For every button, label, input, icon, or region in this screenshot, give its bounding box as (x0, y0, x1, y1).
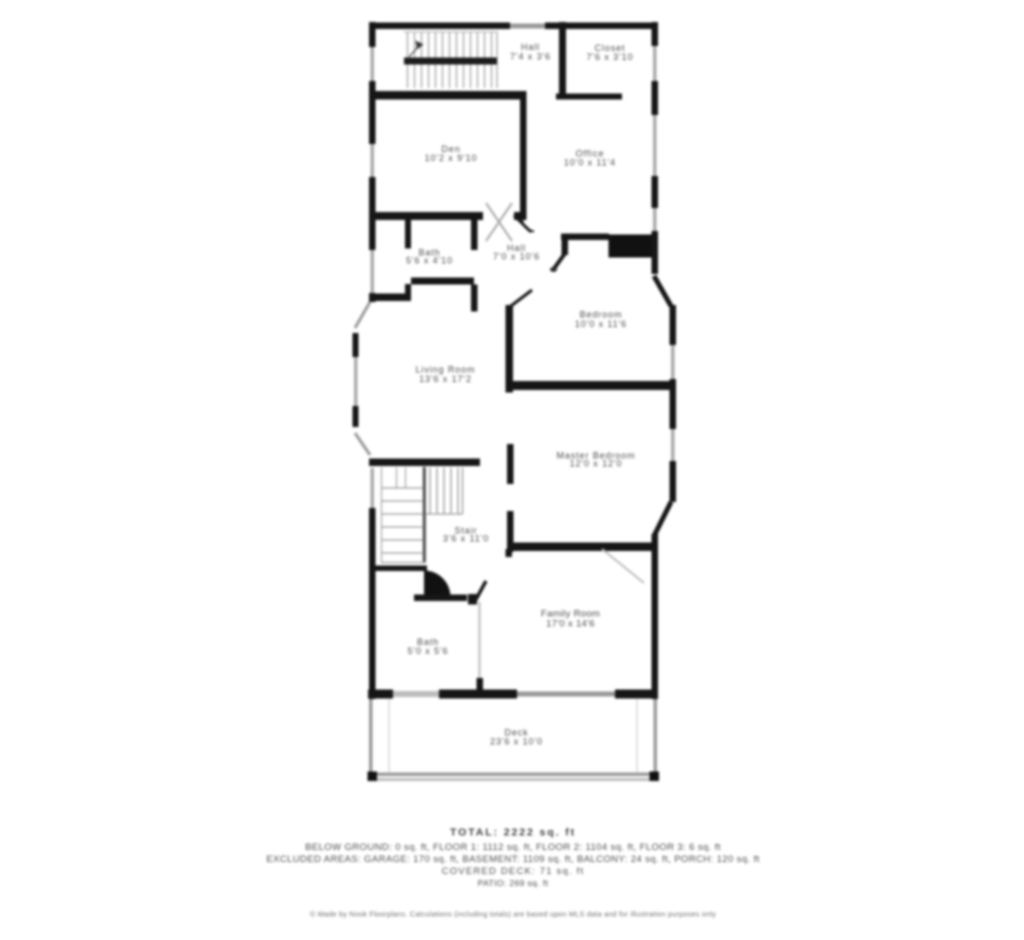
svg-text:10'0 x 11'4: 10'0 x 11'4 (564, 158, 616, 168)
svg-text:BELOW GROUND: 0 sq. ft, FLOOR: BELOW GROUND: 0 sq. ft, FLOOR 1: 1112 sq… (305, 842, 721, 853)
svg-text:5'0 x 5'6: 5'0 x 5'6 (407, 646, 448, 656)
svg-text:10'2 x 9'10: 10'2 x 9'10 (425, 153, 478, 163)
svg-text:Hall: Hall (521, 42, 540, 52)
svg-text:10'0 x 11'6: 10'0 x 11'6 (575, 319, 627, 329)
svg-text:17'0 x 14'6: 17'0 x 14'6 (546, 619, 595, 630)
svg-text:5'6 x 4'10: 5'6 x 4'10 (406, 256, 453, 266)
svg-text:3'6 x 11'0: 3'6 x 11'0 (443, 534, 489, 544)
svg-text:Living Room: Living Room (416, 365, 476, 375)
svg-text:12'0 x 12'0: 12'0 x 12'0 (570, 459, 623, 469)
svg-text:TOTAL: 2222 sq. ft: TOTAL: 2222 sq. ft (450, 827, 576, 839)
svg-text:© Made by Nook Floorplans. Cal: © Made by Nook Floorplans. Calculations … (310, 910, 716, 919)
svg-text:EXCLUDED AREAS: GARAGE: 170 sq: EXCLUDED AREAS: GARAGE: 170 sq. ft, BASE… (266, 854, 759, 865)
svg-text:7'0 x 10'6: 7'0 x 10'6 (493, 252, 540, 262)
svg-text:7'6 x 3'10: 7'6 x 3'10 (587, 52, 634, 62)
svg-text:13'6 x 17'2: 13'6 x 17'2 (419, 374, 472, 384)
svg-text:23'6 x 10'0: 23'6 x 10'0 (490, 737, 543, 747)
svg-text:7'4 x 3'6: 7'4 x 3'6 (510, 52, 551, 62)
svg-text:PATIO: 269 sq. ft: PATIO: 269 sq. ft (478, 878, 549, 888)
svg-text:COVERED DECK: 71 sq. ft: COVERED DECK: 71 sq. ft (442, 866, 585, 877)
svg-text:Bedroom: Bedroom (580, 310, 623, 320)
